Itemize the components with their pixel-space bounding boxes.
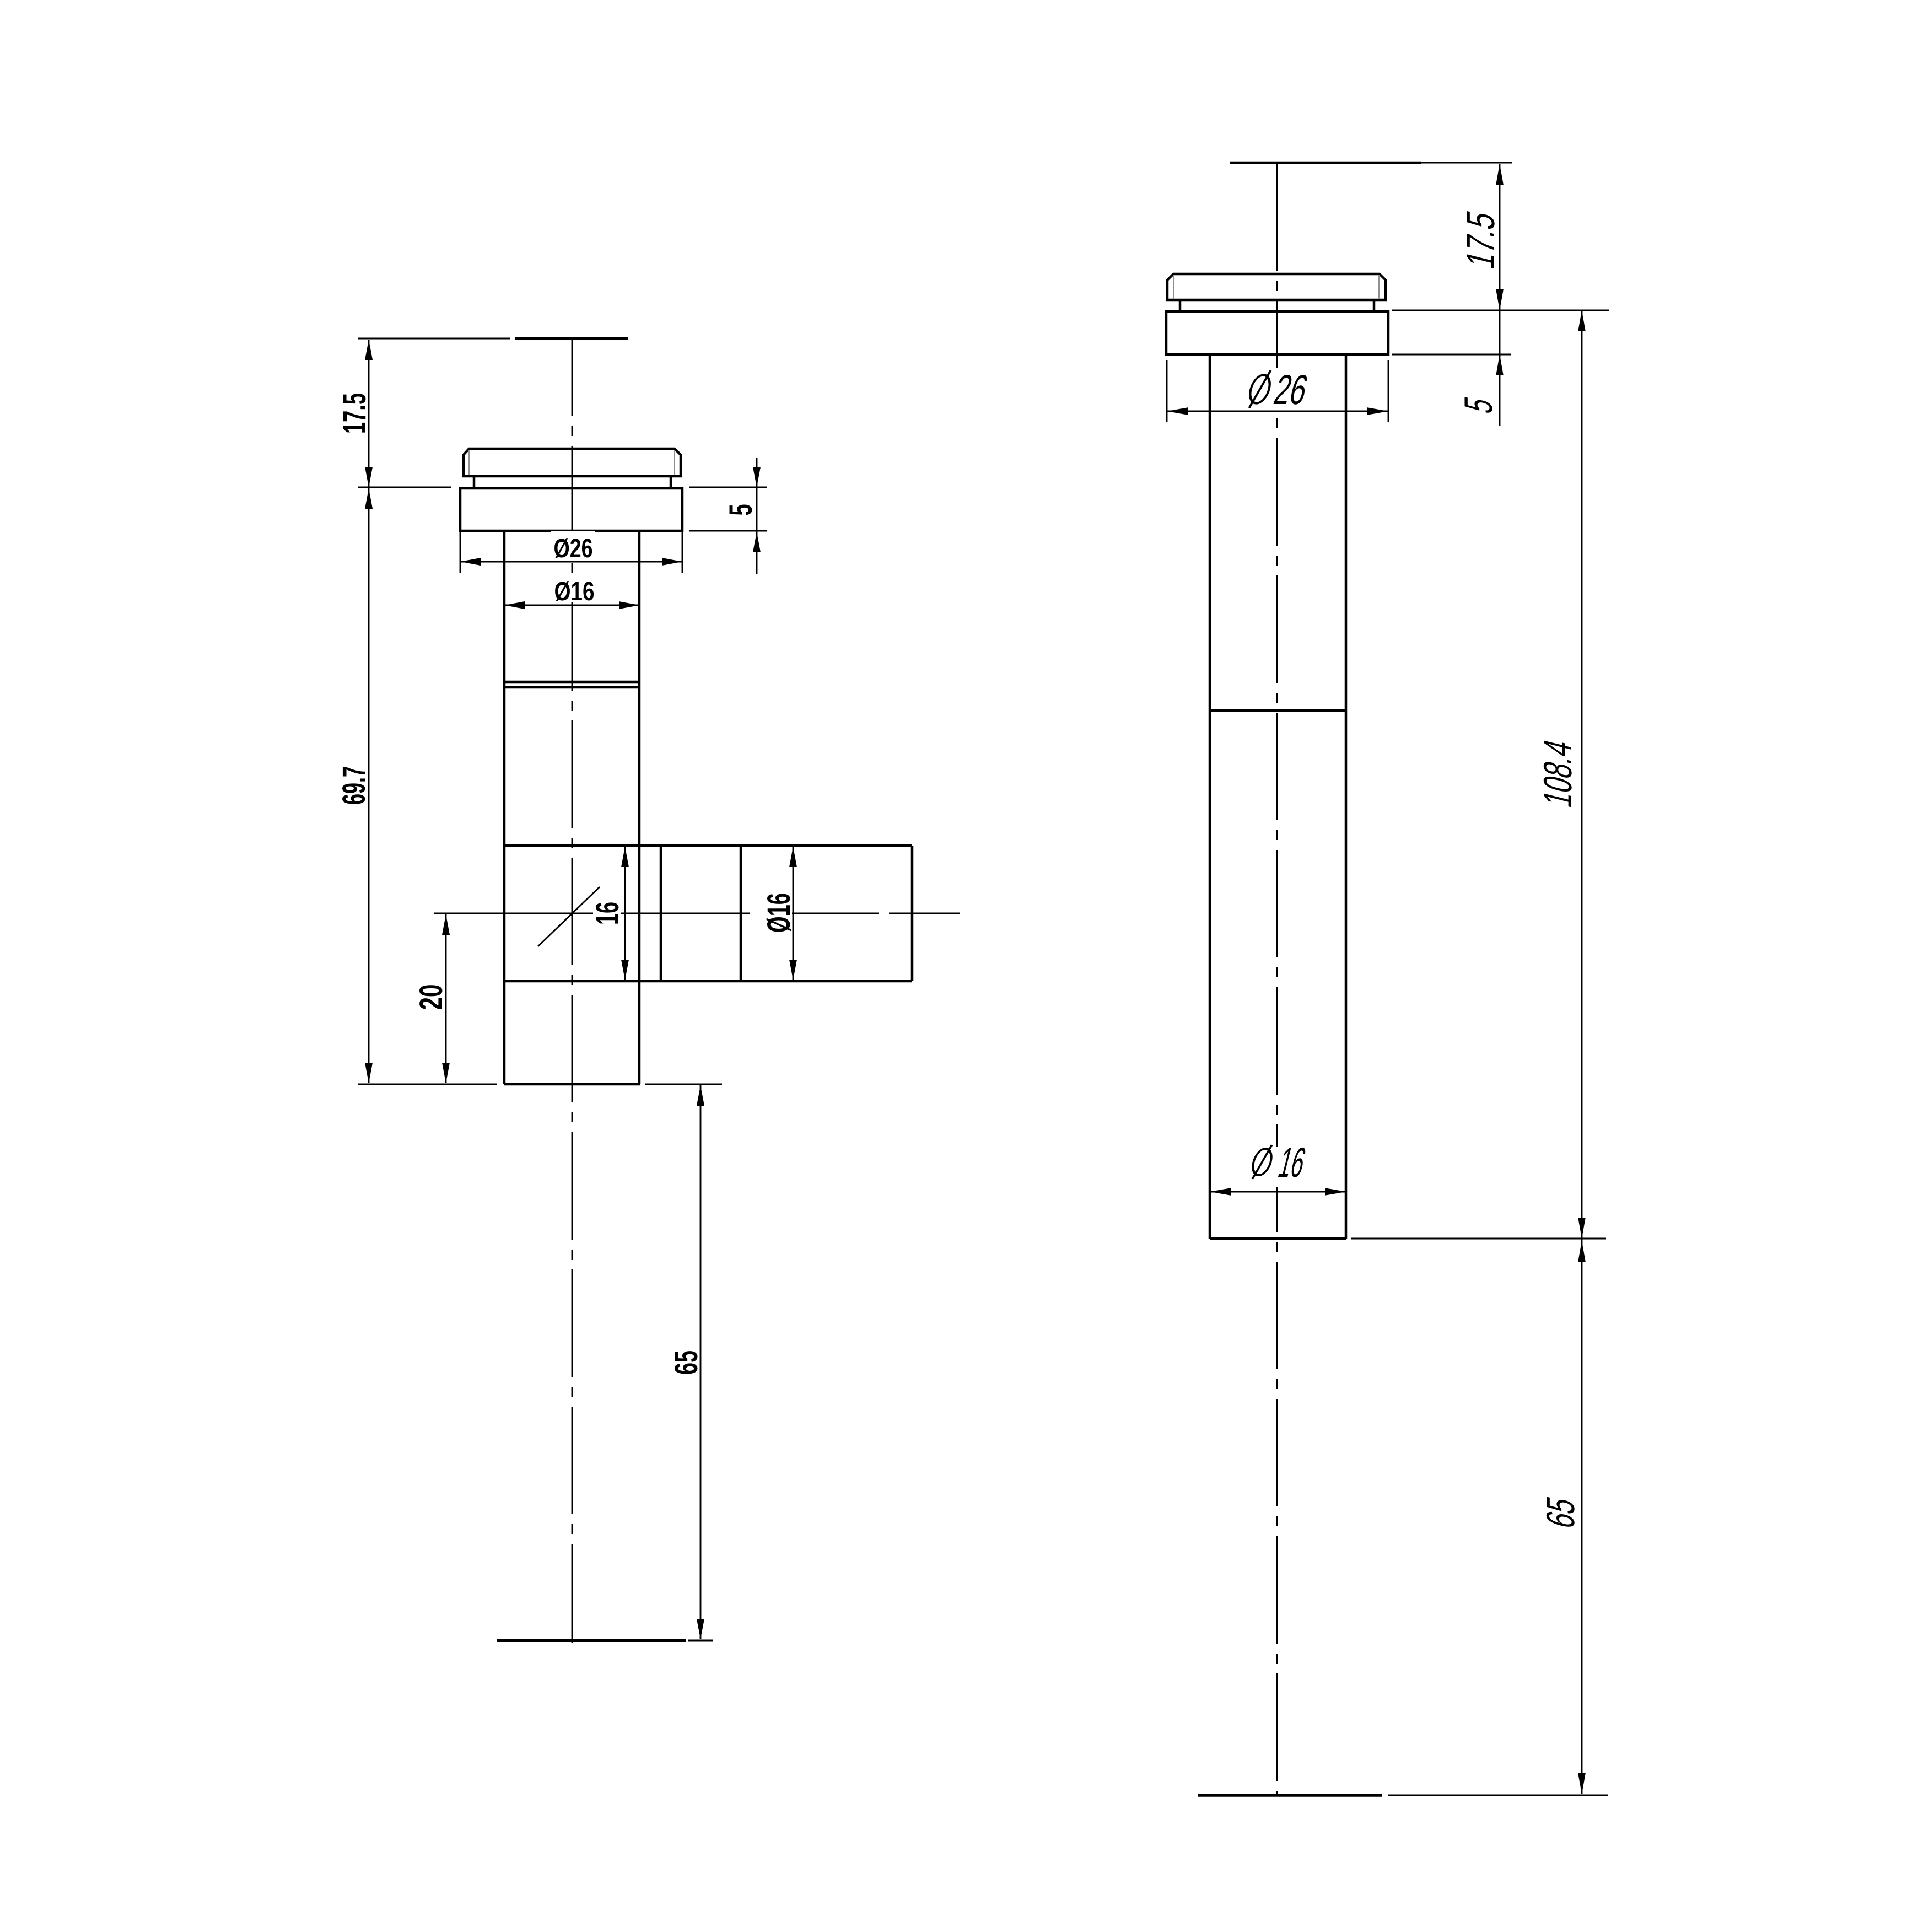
svg-text:5: 5 [723, 504, 759, 516]
svg-text:16: 16 [590, 902, 626, 925]
svg-text:65: 65 [669, 1350, 704, 1375]
svg-text:Ø16: Ø16 [761, 893, 797, 933]
svg-text:17.5: 17.5 [1459, 207, 1503, 273]
svg-text:108.4: 108.4 [1536, 735, 1580, 811]
svg-text:17.5: 17.5 [337, 393, 373, 434]
svg-text:69.7: 69.7 [336, 766, 372, 805]
svg-text:Ø26: Ø26 [554, 534, 593, 563]
svg-text:Ø16: Ø16 [554, 577, 595, 606]
svg-text:20: 20 [413, 984, 449, 1010]
